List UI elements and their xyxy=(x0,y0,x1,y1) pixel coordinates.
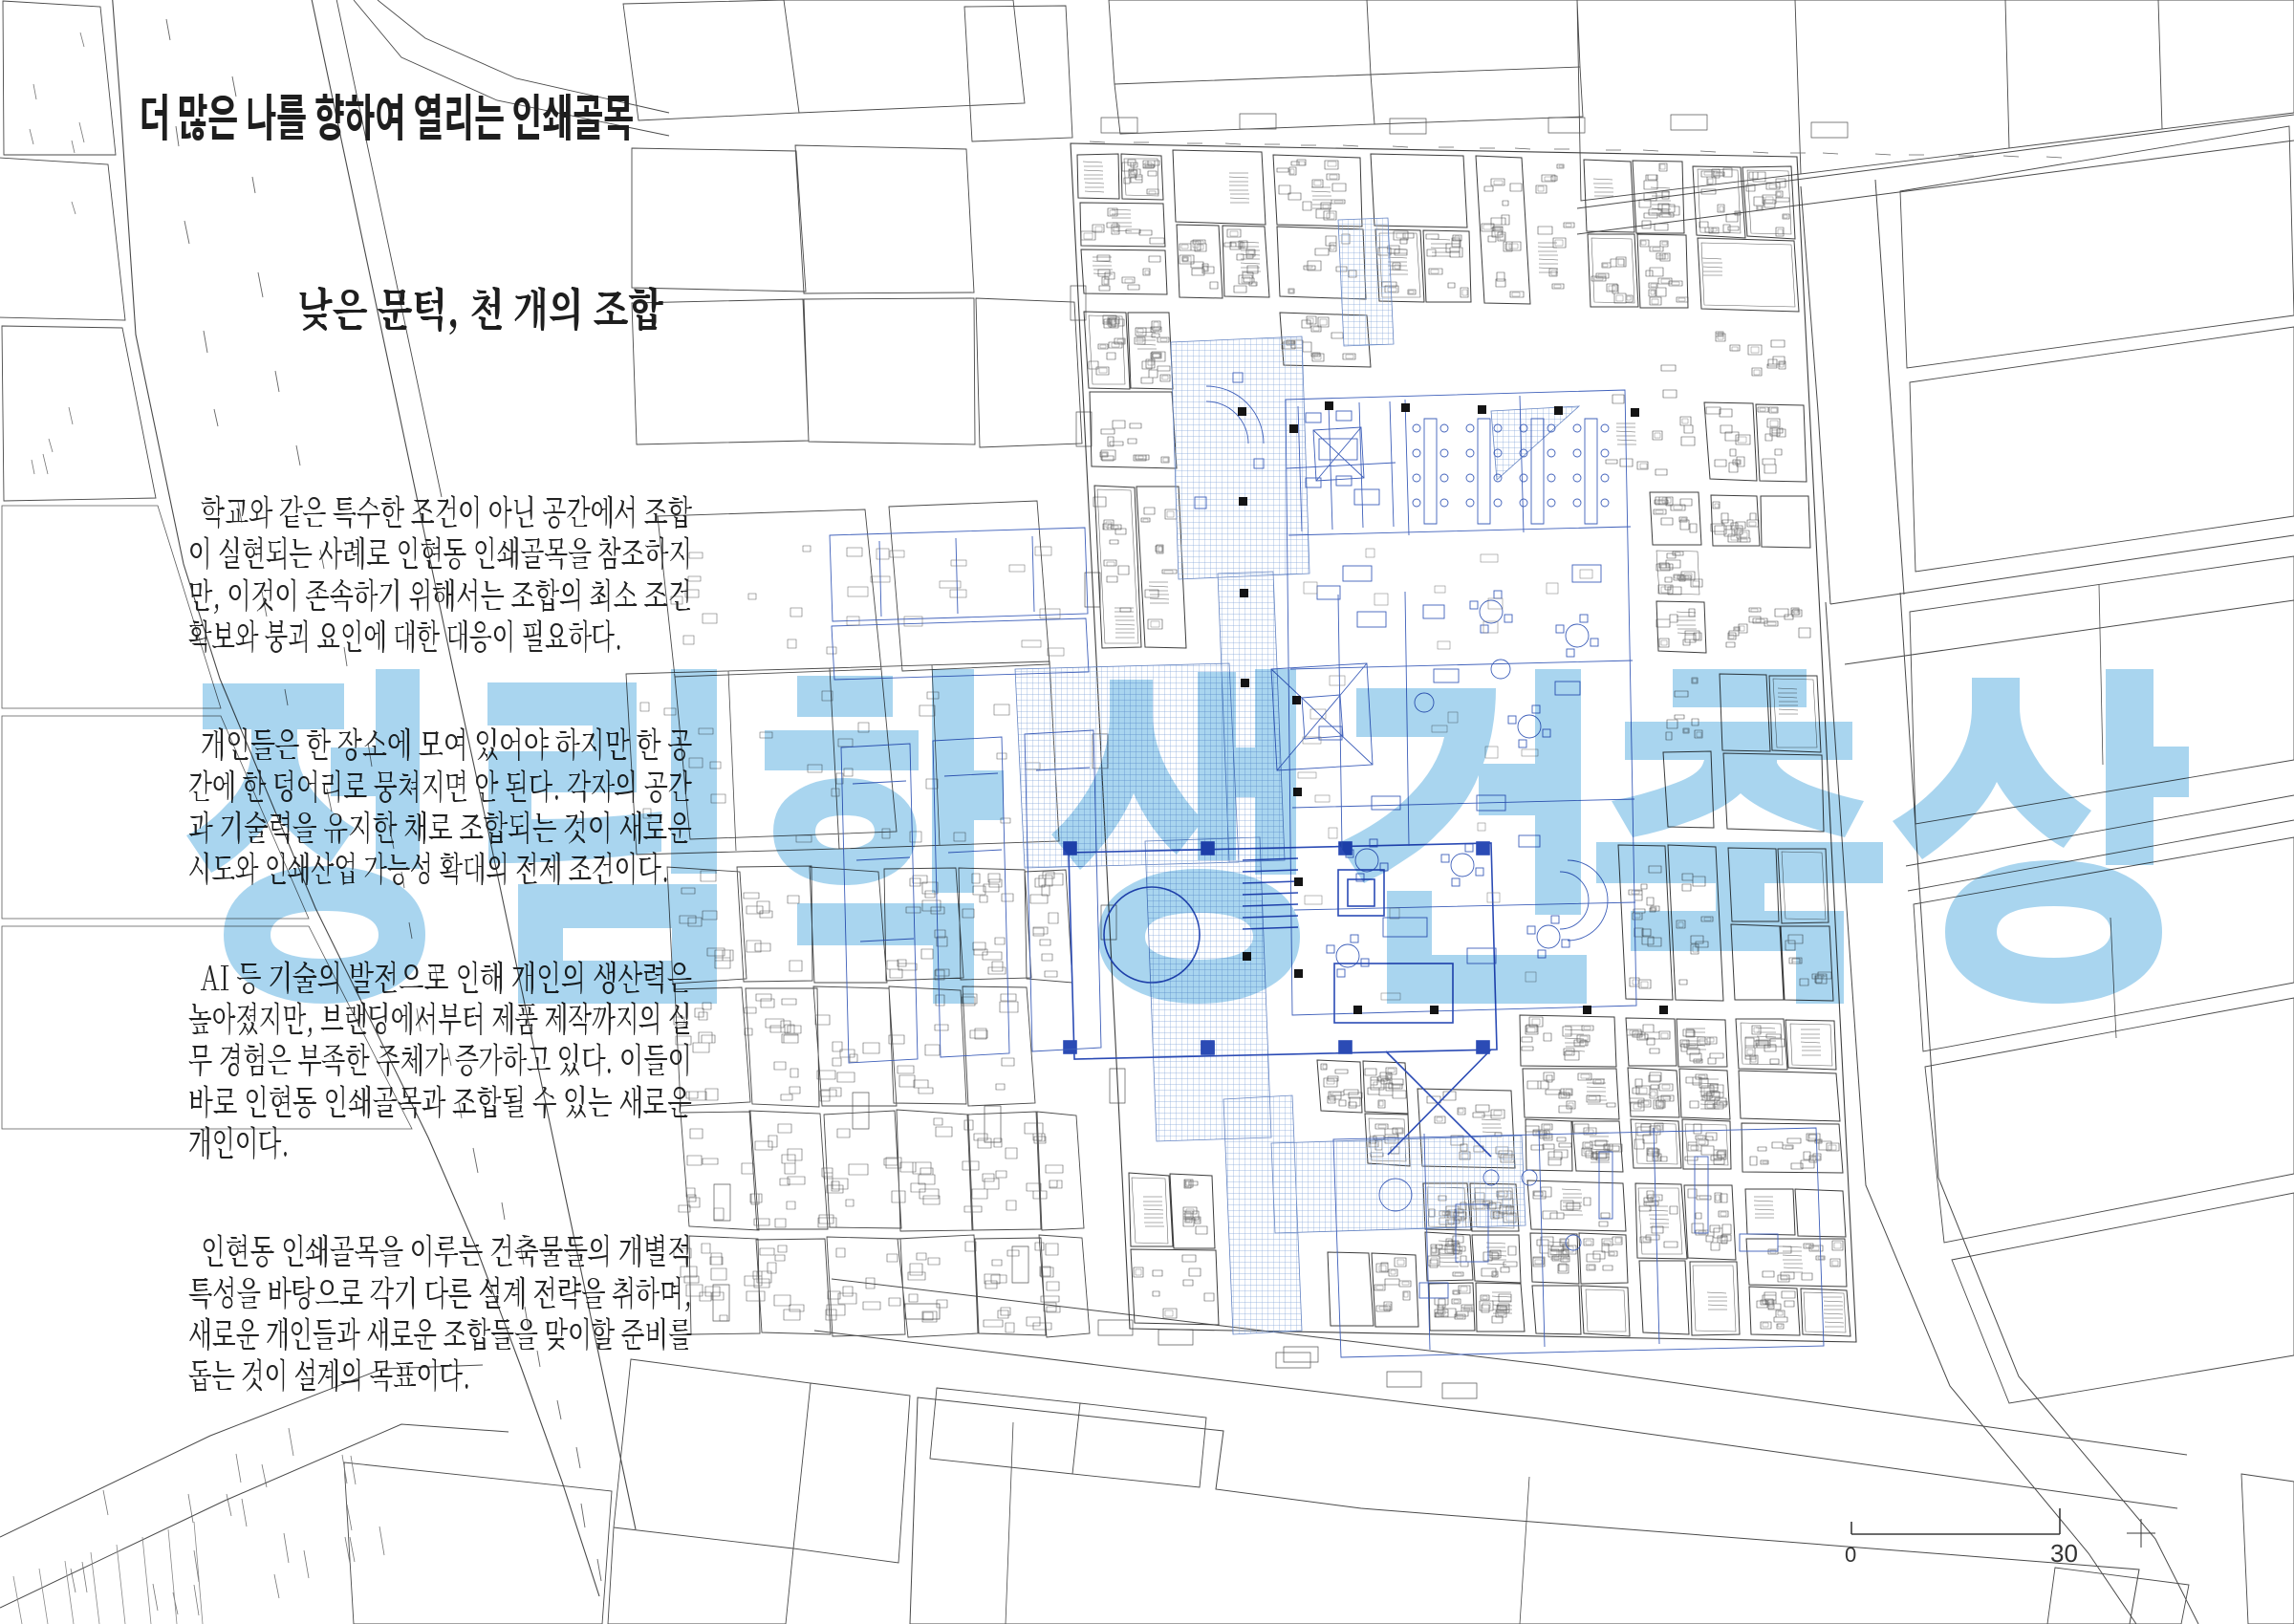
svg-text:0: 0 xyxy=(1845,1543,1856,1567)
svg-text:30: 30 xyxy=(2050,1539,2078,1568)
